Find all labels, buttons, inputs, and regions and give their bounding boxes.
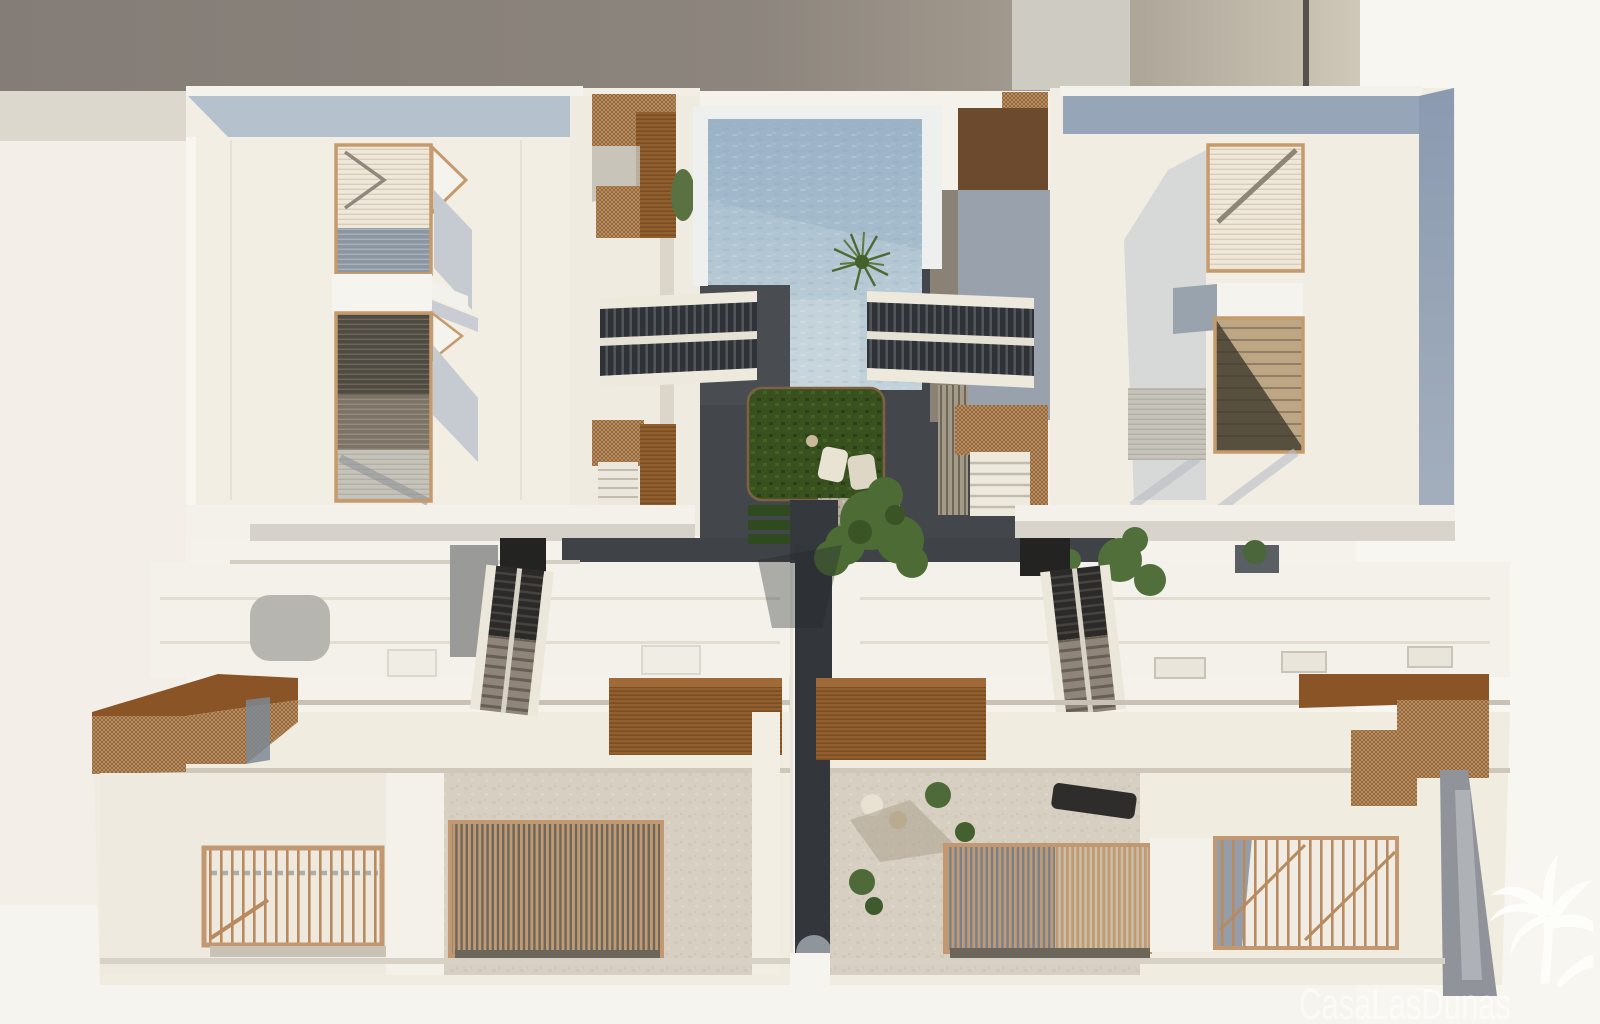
svg-text:CasaLasDunas: CasaLasDunas xyxy=(1299,980,1511,1024)
